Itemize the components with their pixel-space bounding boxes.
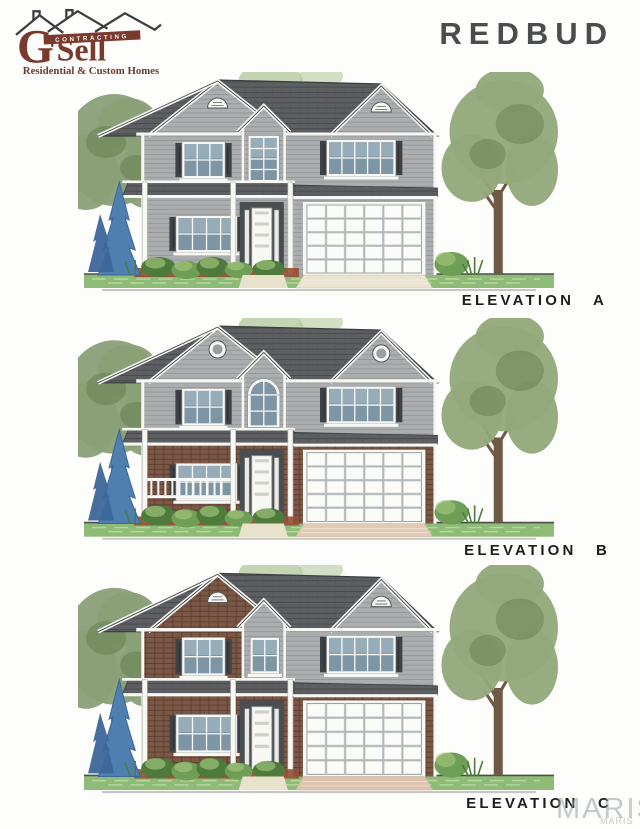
window [320, 635, 402, 677]
gsell-logo: G 'Sell CONTRACTING Residential & Custom… [12, 4, 168, 76]
window [175, 142, 231, 182]
driveway [239, 776, 433, 790]
flyer-page: G 'Sell CONTRACTING Residential & Custom… [0, 0, 640, 829]
driveway [239, 524, 433, 537]
window [175, 637, 231, 679]
plan-title: REDBUD [439, 16, 614, 52]
garage-door [303, 202, 426, 275]
right-tree [442, 318, 558, 523]
window [248, 637, 282, 677]
driveway [239, 275, 433, 288]
elevation-b-label: ELEVATION B [464, 542, 610, 559]
elevation-c-drawing [78, 565, 560, 815]
elevation-a-label: ELEVATION A [462, 292, 607, 309]
window [175, 388, 231, 429]
right-tree [442, 565, 558, 775]
window [320, 386, 402, 427]
elevation-a-drawing [78, 72, 560, 312]
garage-door [303, 450, 426, 524]
maris-watermark-small: MARIS [600, 816, 634, 826]
garage-door [303, 700, 426, 776]
arched-window [246, 379, 282, 432]
right-tree [442, 72, 558, 274]
window [246, 136, 282, 186]
window [320, 140, 402, 180]
elevation-b-drawing [78, 318, 560, 561]
gsell-logo-graphic: G 'Sell CONTRACTING Residential & Custom… [12, 4, 168, 76]
